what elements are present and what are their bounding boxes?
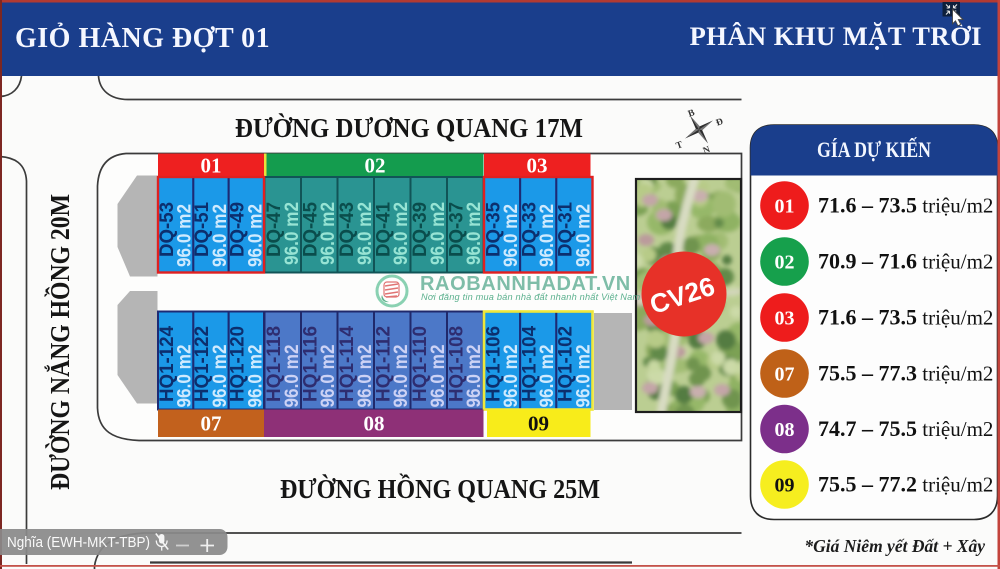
svg-text:96.0 m2: 96.0 m2 [573, 204, 594, 267]
svg-text:07: 07 [775, 364, 795, 386]
svg-text:08: 08 [775, 419, 795, 441]
svg-text:ĐƯỜNG HỒNG QUANG 25M: ĐƯỜNG HỒNG QUANG 25M [280, 473, 600, 504]
svg-text:09: 09 [775, 475, 795, 497]
svg-text:71.6 – 73.5 triệu/m2: 71.6 – 73.5 triệu/m2 [818, 193, 993, 218]
svg-text:GIỎ HÀNG ĐỢT 01: GIỎ HÀNG ĐỢT 01 [15, 23, 270, 54]
svg-text:02: 02 [775, 252, 795, 274]
svg-text:75.5 – 77.3 triệu/m2: 75.5 – 77.3 triệu/m2 [818, 361, 993, 386]
svg-text:74.7 – 75.5 triệu/m2: 74.7 – 75.5 triệu/m2 [818, 416, 993, 441]
svg-text:75.5 – 77.2 triệu/m2: 75.5 – 77.2 triệu/m2 [818, 472, 993, 497]
svg-text:96.0 m2: 96.0 m2 [464, 345, 485, 408]
svg-text:03: 03 [775, 308, 795, 330]
svg-text:Nơi đăng tin mua bán nhà đất n: Nơi đăng tin mua bán nhà đất nhanh nhất … [421, 292, 640, 302]
svg-text:PHÂN KHU MẶT TRỜI: PHÂN KHU MẶT TRỜI [690, 21, 982, 51]
svg-text:ĐƯỜNG NẮNG HỒNG 20M: ĐƯỜNG NẮNG HỒNG 20M [44, 194, 75, 490]
svg-text:09: 09 [528, 412, 549, 436]
svg-text:ĐƯỜNG DƯƠNG QUANG 17M: ĐƯỜNG DƯƠNG QUANG 17M [235, 113, 583, 143]
svg-text:GÍA DỰ KIẾN: GÍA DỰ KIẾN [817, 137, 931, 162]
svg-text:*Giá Niêm yết Đất + Xây: *Giá Niêm yết Đất + Xây [804, 536, 985, 556]
svg-text:01: 01 [775, 196, 795, 218]
svg-text:71.6 – 73.5 triệu/m2: 71.6 – 73.5 triệu/m2 [818, 305, 993, 330]
svg-text:70.9 – 71.6 triệu/m2: 70.9 – 71.6 triệu/m2 [818, 249, 993, 274]
svg-text:Nghĩa (EWH-MKT-TBP): Nghĩa (EWH-MKT-TBP) [7, 535, 150, 551]
svg-text:03: 03 [527, 154, 548, 178]
svg-text:07: 07 [201, 412, 222, 436]
svg-text:01: 01 [201, 154, 222, 178]
svg-text:08: 08 [364, 412, 385, 436]
svg-text:96.0 m2: 96.0 m2 [464, 202, 485, 265]
svg-text:02: 02 [365, 154, 386, 178]
